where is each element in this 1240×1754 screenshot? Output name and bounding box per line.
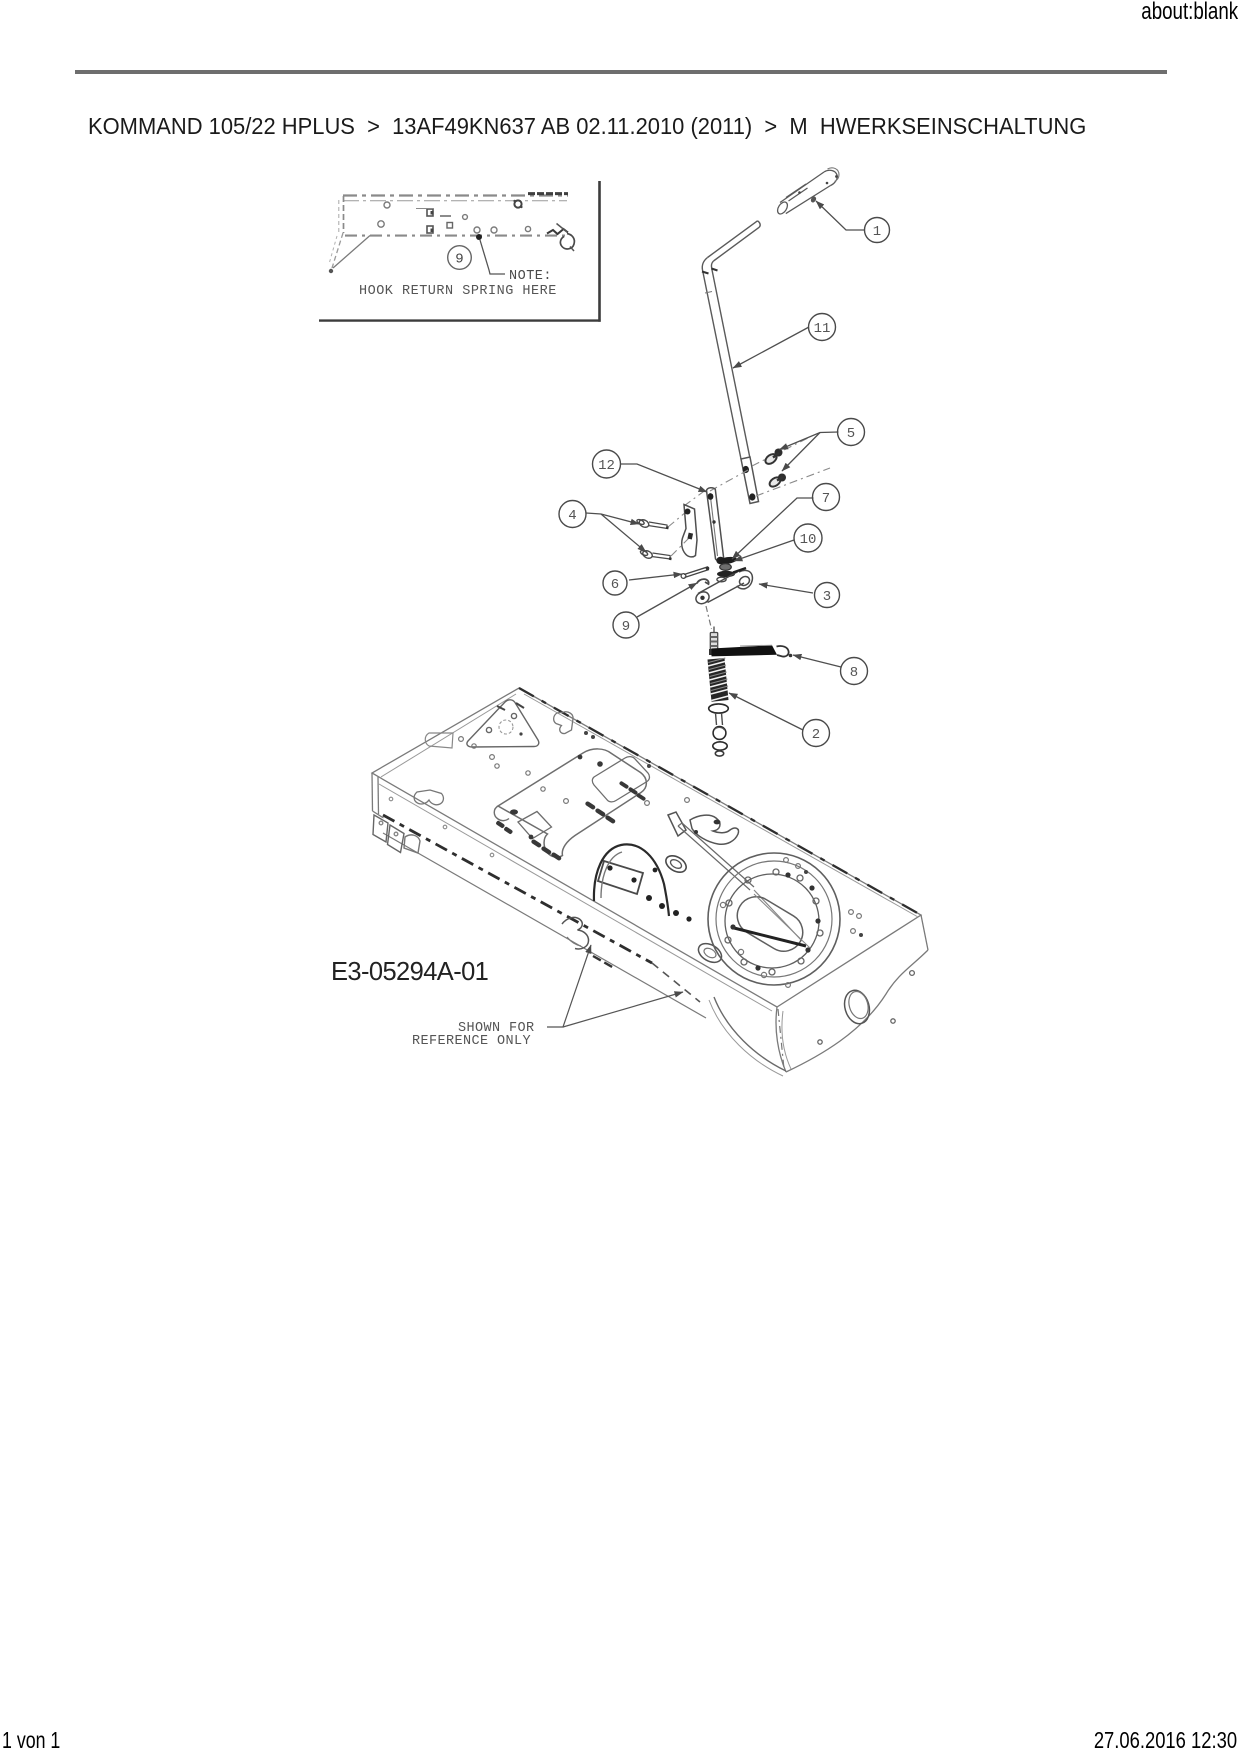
- svg-text:5: 5: [847, 426, 855, 442]
- svg-text:8: 8: [850, 665, 858, 681]
- svg-text:10: 10: [800, 532, 817, 548]
- svg-text:4: 4: [568, 508, 576, 524]
- svg-text:REFERENCE ONLY: REFERENCE ONLY: [412, 1034, 531, 1049]
- svg-text:6: 6: [611, 577, 619, 593]
- svg-text:9: 9: [622, 619, 630, 635]
- svg-text:11: 11: [814, 321, 831, 337]
- svg-text:3: 3: [823, 589, 831, 605]
- svg-text:1: 1: [873, 224, 881, 240]
- svg-text:NOTE:: NOTE:: [509, 269, 552, 284]
- svg-text:12: 12: [598, 458, 615, 474]
- svg-text:HOOK RETURN SPRING HERE: HOOK RETURN SPRING HERE: [359, 284, 557, 299]
- svg-text:E3-05294A-01: E3-05294A-01: [331, 958, 488, 986]
- svg-text:7: 7: [822, 491, 830, 507]
- svg-text:9: 9: [455, 252, 463, 268]
- svg-text:2: 2: [812, 727, 820, 743]
